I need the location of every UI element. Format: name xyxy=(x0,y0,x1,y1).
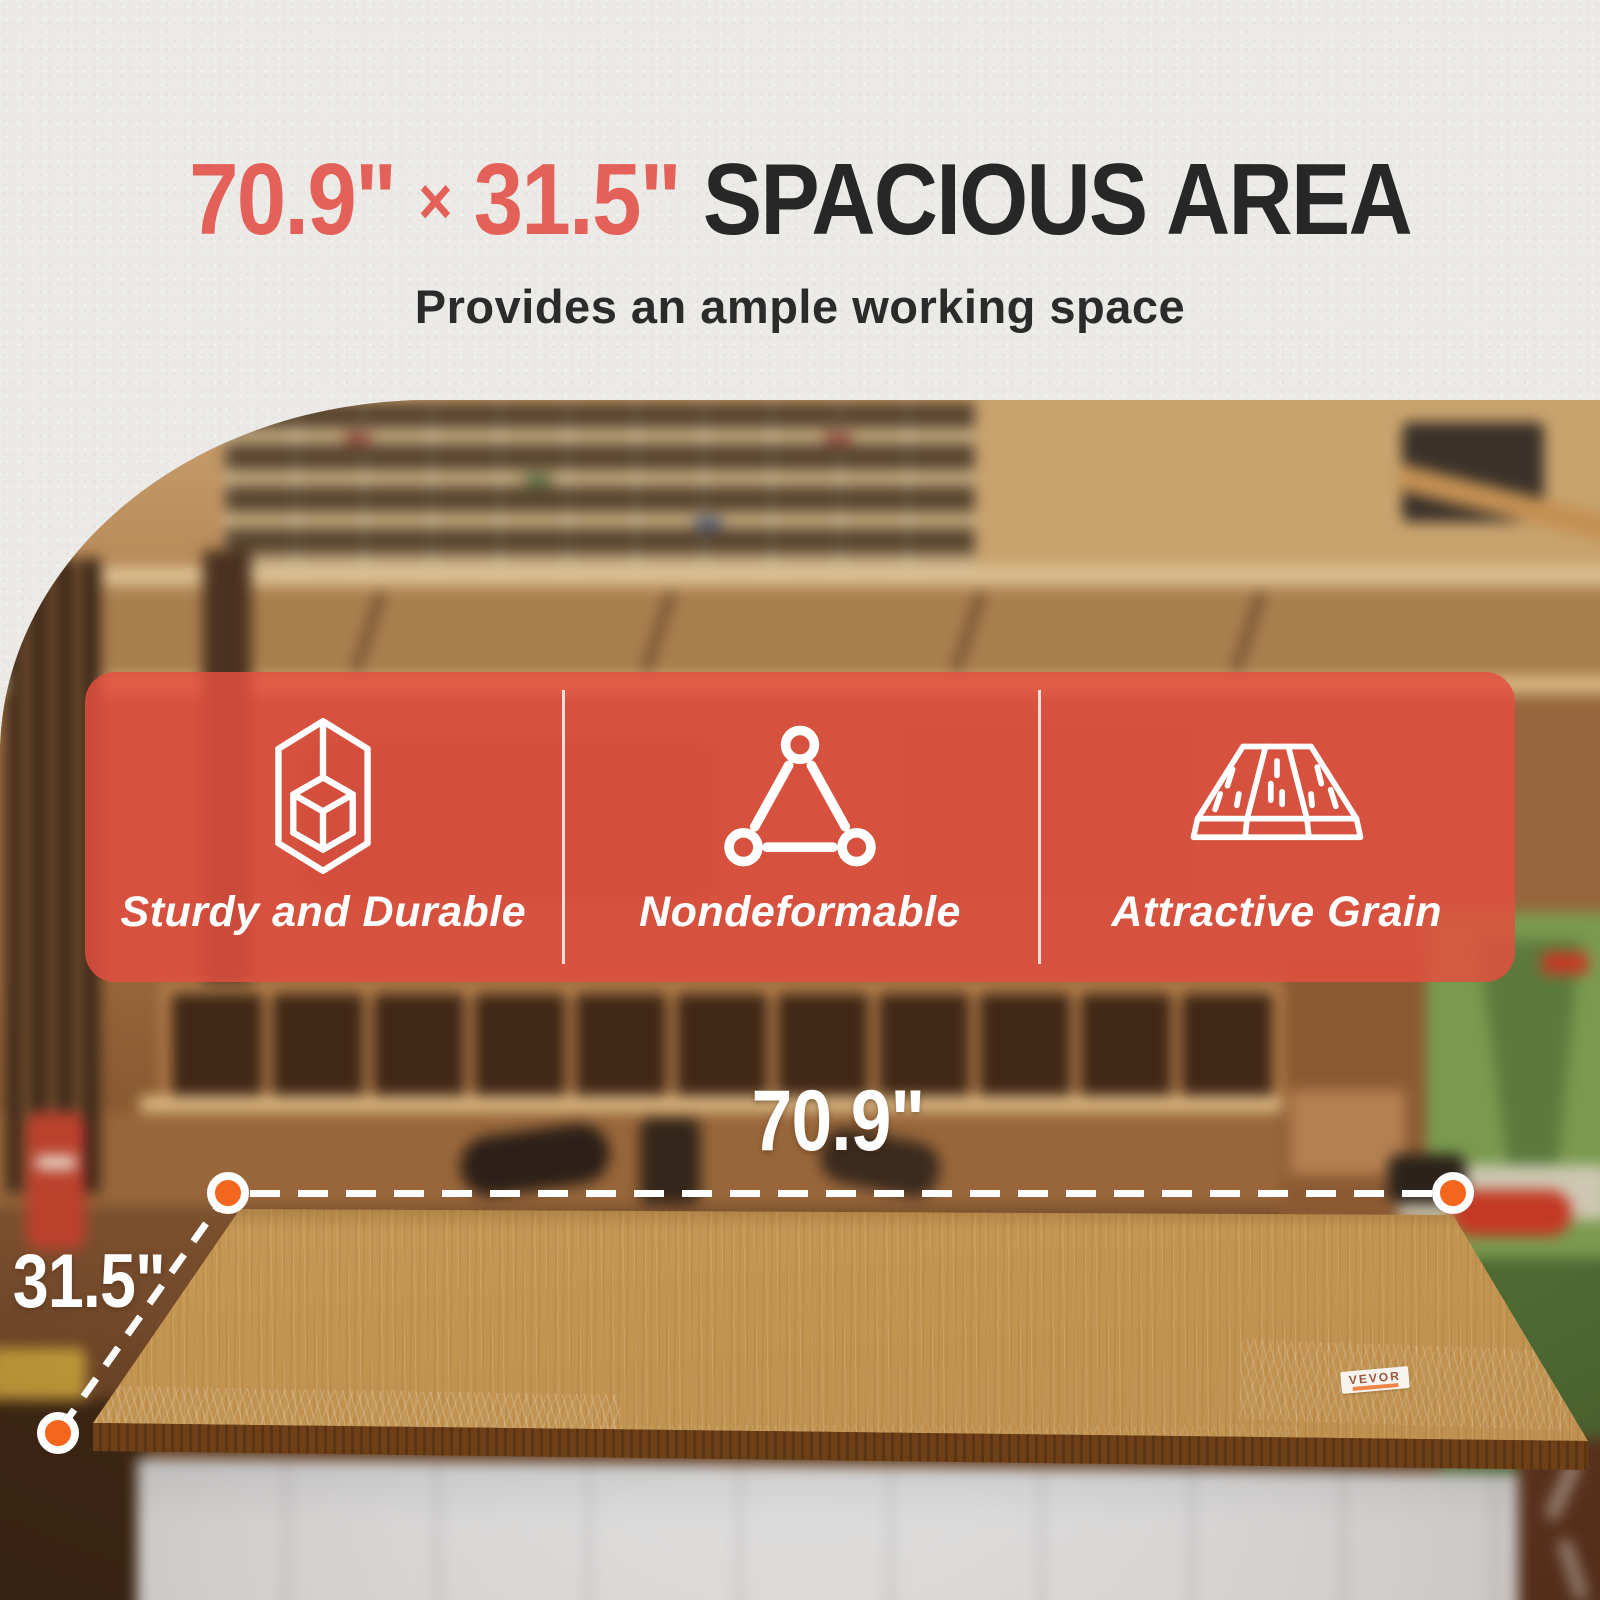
multiply-sign: × xyxy=(418,165,451,239)
depth-dimension-label: 31.5" xyxy=(13,1238,158,1325)
title-depth-value: 31.5" xyxy=(474,144,680,256)
dimension-endpoint-dot xyxy=(207,1172,249,1214)
product-infographic: 70.9"×31.5"SPACIOUS AREA Provides an amp… xyxy=(0,0,1600,1600)
width-dimension-label: 70.9" xyxy=(668,1072,1008,1171)
dimension-endpoint-dot xyxy=(37,1412,79,1454)
page-subtitle: Provides an ample working space xyxy=(0,279,1600,334)
headline-block: 70.9"×31.5"SPACIOUS AREA Provides an amp… xyxy=(0,0,1600,334)
width-dimension-line xyxy=(250,1190,1435,1197)
title-text: SPACIOUS AREA xyxy=(703,144,1411,256)
page-title: 70.9"×31.5"SPACIOUS AREA xyxy=(96,150,1504,251)
dimension-endpoint-dot xyxy=(1432,1172,1474,1214)
title-width-value: 70.9" xyxy=(189,144,395,256)
